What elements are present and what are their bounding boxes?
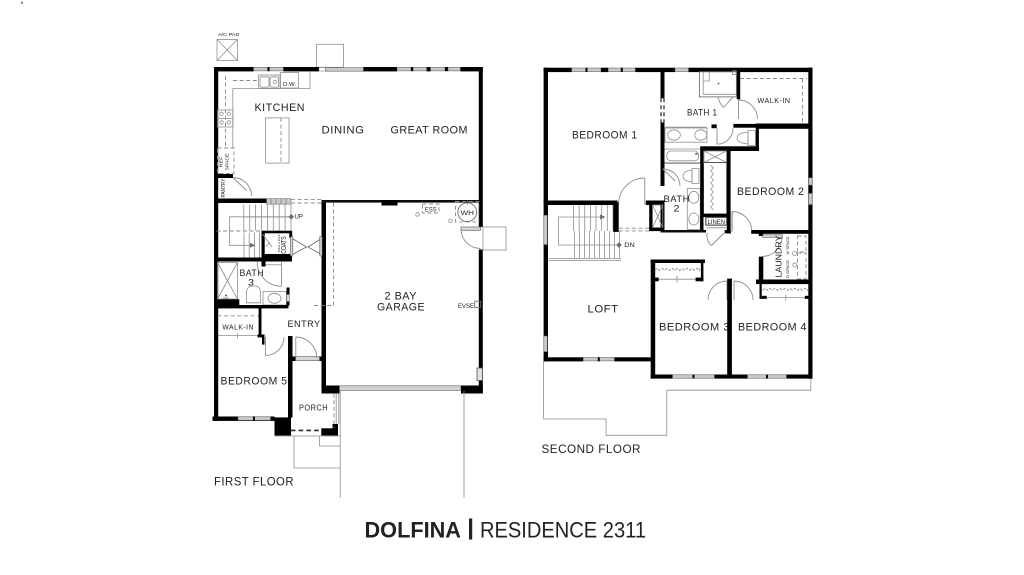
- svg-text:W SPACE: W SPACE: [786, 236, 790, 255]
- svg-text:FIRST FLOOR: FIRST FLOOR: [214, 475, 294, 489]
- svg-text:RESIDENCE 2311: RESIDENCE 2311: [480, 518, 646, 543]
- svg-text:WALK-IN: WALK-IN: [222, 323, 254, 332]
- svg-text:WALK-IN: WALK-IN: [758, 96, 791, 105]
- svg-text:LINEN: LINEN: [708, 219, 726, 226]
- svg-text:BATH: BATH: [240, 268, 265, 278]
- svg-text:ESS: ESS: [425, 207, 437, 213]
- svg-text:REF: REF: [219, 156, 224, 167]
- svg-text:D.W.: D.W.: [283, 82, 296, 88]
- svg-text:GREAT ROOM: GREAT ROOM: [391, 125, 469, 137]
- svg-text:DOLFINA: DOLFINA: [365, 518, 462, 543]
- svg-text:PORCH: PORCH: [299, 404, 328, 413]
- svg-text:BEDROOM 4: BEDROOM 4: [738, 322, 807, 334]
- svg-text:SHELF & POLE: SHELF & POLE: [277, 235, 281, 253]
- svg-text:EVSE: EVSE: [458, 304, 474, 310]
- svg-text:GARAGE: GARAGE: [377, 302, 425, 314]
- svg-text:BEDROOM 2: BEDROOM 2: [737, 186, 805, 198]
- svg-text:LOFT: LOFT: [588, 304, 619, 316]
- svg-text:KITCHEN: KITCHEN: [255, 102, 306, 114]
- svg-text:BEDROOM 5: BEDROOM 5: [221, 376, 288, 388]
- svg-text:WH: WH: [461, 210, 475, 217]
- svg-text:A/C PAD: A/C PAD: [218, 32, 240, 38]
- svg-text:UP: UP: [295, 214, 304, 221]
- svg-text:ENTRY: ENTRY: [288, 318, 321, 329]
- svg-text:BATH: BATH: [664, 194, 691, 204]
- svg-text:BEDROOM 3: BEDROOM 3: [659, 322, 730, 334]
- svg-text:BEDROOM 1: BEDROOM 1: [572, 130, 638, 142]
- svg-text:2: 2: [674, 204, 680, 214]
- svg-text:DN: DN: [624, 242, 635, 249]
- svg-text:DINING: DINING: [322, 125, 365, 137]
- svg-text:BATH 1: BATH 1: [687, 107, 718, 117]
- svg-text:LAUNDRY: LAUNDRY: [775, 235, 784, 278]
- svg-text:SPACE: SPACE: [225, 154, 230, 171]
- svg-text:PANTRY: PANTRY: [221, 178, 227, 198]
- svg-text:D SPACE: D SPACE: [786, 259, 790, 278]
- svg-text:SECOND FLOOR: SECOND FLOOR: [542, 442, 642, 456]
